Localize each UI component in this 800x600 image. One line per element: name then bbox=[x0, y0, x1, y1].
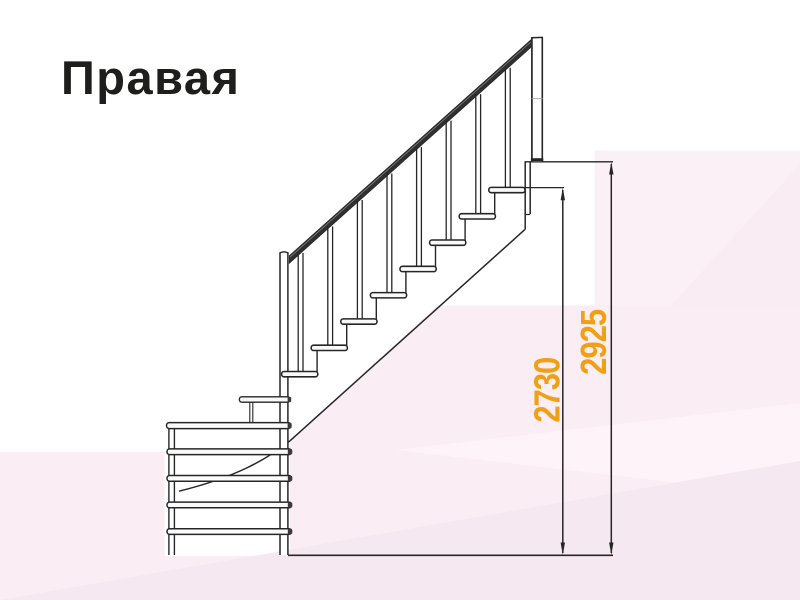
svg-text:2730: 2730 bbox=[527, 358, 568, 423]
svg-text:2925: 2925 bbox=[574, 310, 615, 375]
